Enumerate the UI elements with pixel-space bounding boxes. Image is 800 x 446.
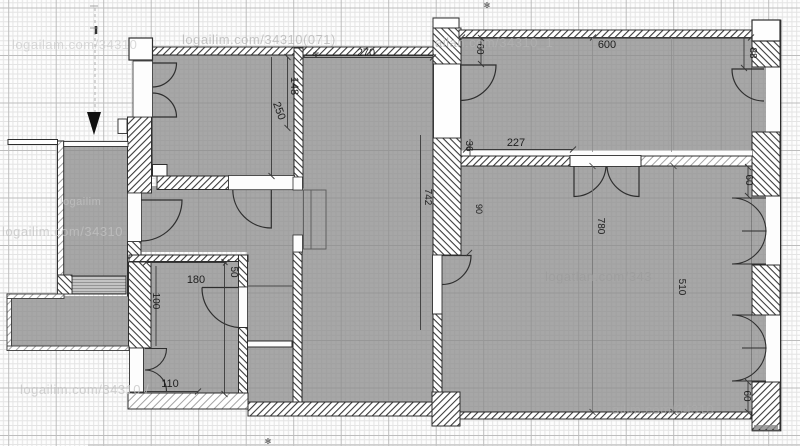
svg-text:100: 100: [150, 293, 161, 310]
svg-text:logailim.com/34310: logailim.com/34310: [2, 224, 123, 239]
svg-text:227: 227: [507, 137, 525, 149]
svg-text:ailim.com/34310: ailim.com/34310: [612, 402, 714, 417]
svg-text:✻: ✻: [484, 1, 491, 10]
svg-text:60: 60: [741, 390, 752, 402]
svg-text:600: 600: [598, 39, 616, 51]
svg-text:logailim.com/34310(071): logailim.com/34310(071): [182, 32, 336, 47]
svg-text:✻: ✻: [313, 50, 320, 59]
svg-text:88: 88: [747, 47, 758, 59]
svg-text:148: 148: [288, 77, 300, 95]
svg-text:ailan.com/34310_1: ailan.com/34310_1: [435, 35, 553, 50]
svg-text:50: 50: [228, 266, 239, 278]
svg-text:logailim: logailim: [60, 196, 101, 208]
svg-text:60: 60: [743, 174, 754, 186]
svg-text:90: 90: [474, 204, 484, 214]
svg-text:742: 742: [422, 189, 433, 206]
svg-text:logailim.com/34310 /: logailim.com/34310 /: [20, 382, 149, 397]
svg-text:180: 180: [187, 274, 205, 286]
svg-text:780: 780: [595, 218, 606, 235]
svg-text:110: 110: [161, 378, 179, 390]
svg-text:270: 270: [357, 47, 375, 59]
svg-text:36: 36: [463, 140, 474, 152]
svg-text:510: 510: [676, 279, 687, 296]
svg-text:logatlan.com/343: logatlan.com/343: [545, 269, 652, 284]
svg-text:logailam.com/34310: logailam.com/34310: [12, 37, 137, 52]
